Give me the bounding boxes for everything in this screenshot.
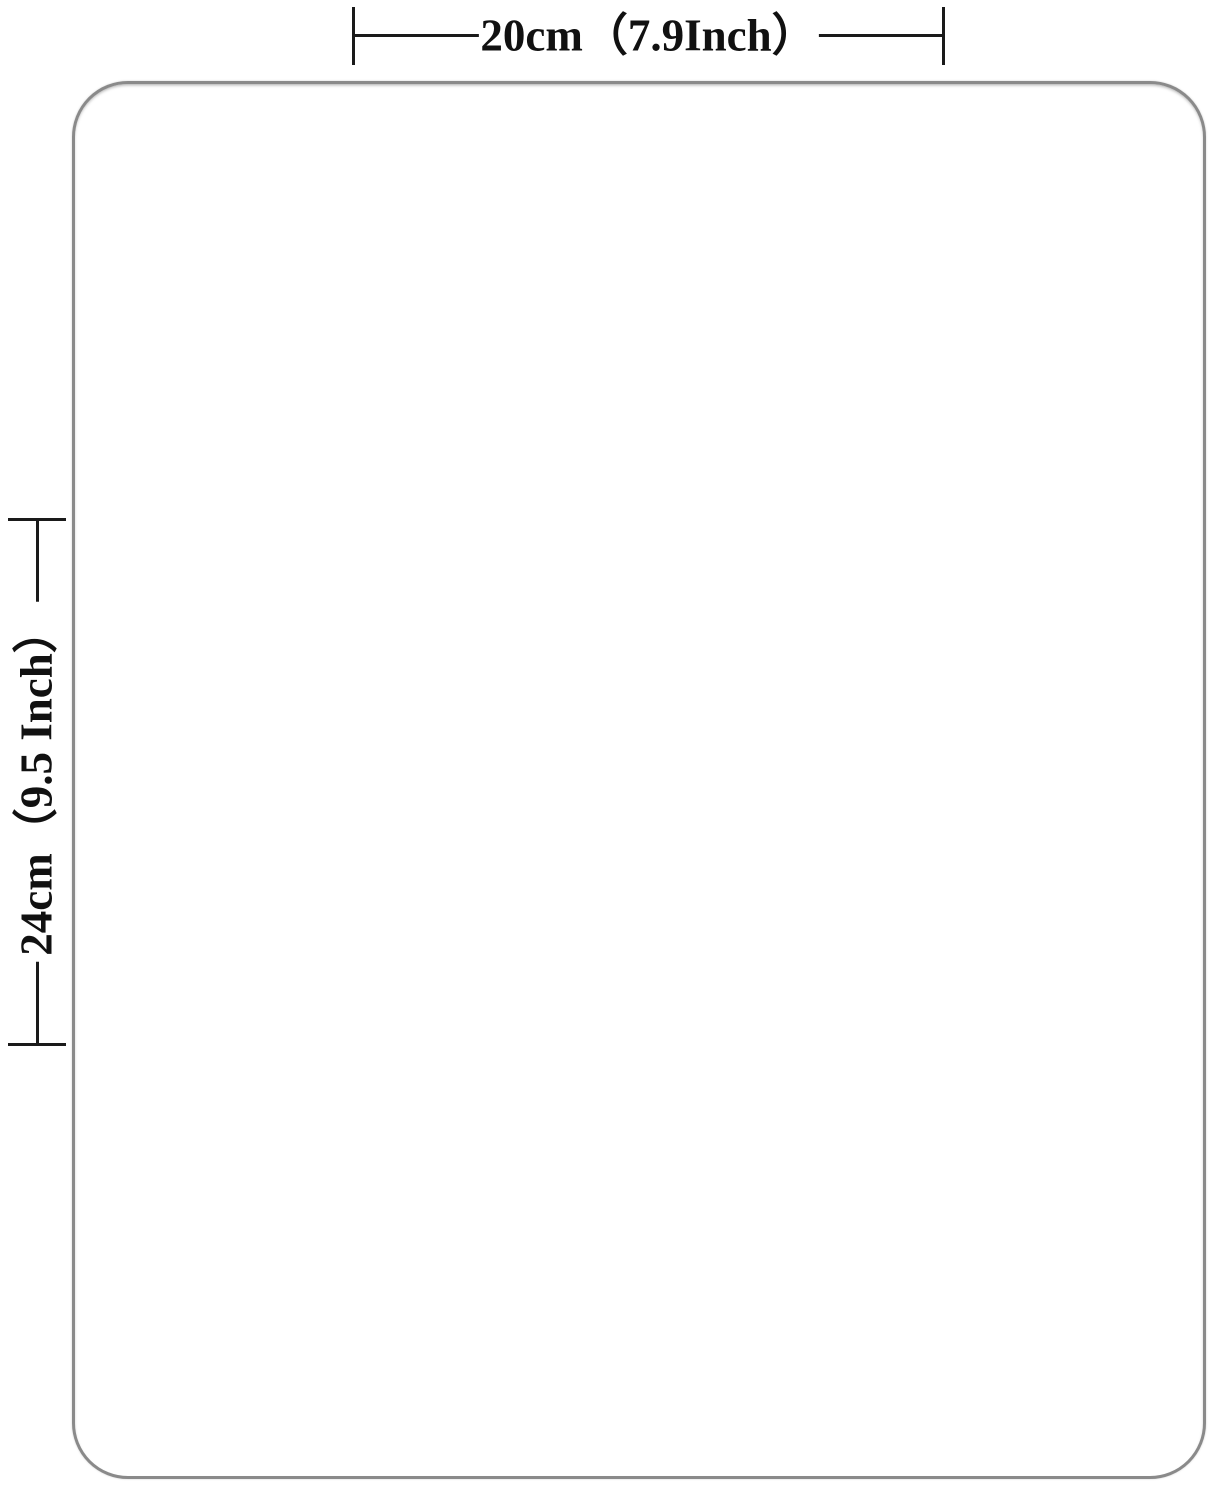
width-dimension: 20cm（7.9Inch） [352,7,945,65]
height-dimension-label: 24cm（9.5 Inch） [15,602,60,962]
height-dimension-bottom-tick [8,1043,66,1046]
product-outline-card [72,81,1206,1479]
height-dimension: 24cm（9.5 Inch） [8,518,66,1046]
height-dimension-top-tick [8,518,66,521]
width-dimension-right-tick [942,7,945,65]
width-dimension-label: 20cm（7.9Inch） [478,14,818,59]
width-dimension-left-tick [352,7,355,65]
product-size-diagram: 20cm（7.9Inch） 24cm（9.5 Inch） [0,0,1217,1492]
